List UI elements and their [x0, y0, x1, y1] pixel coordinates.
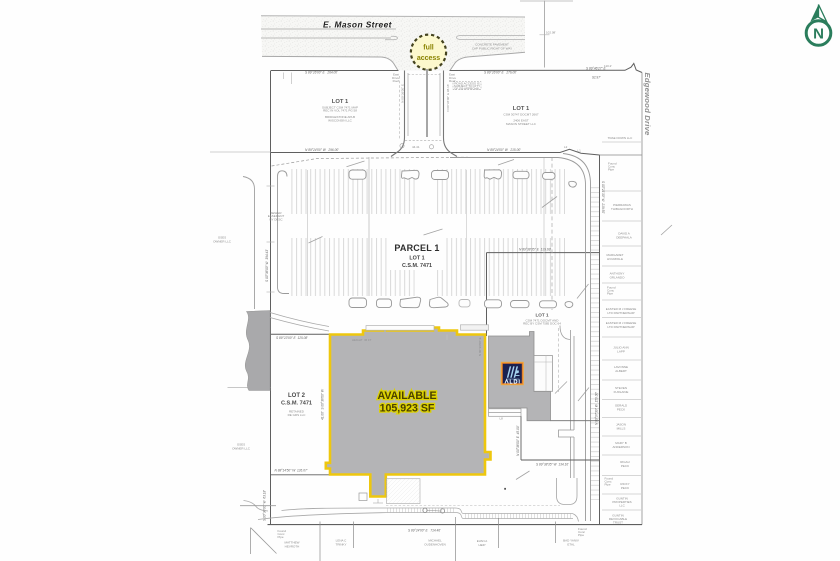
svg-text:Pipe: Pipe	[578, 533, 584, 537]
svg-text:Edgewood Drive: Edgewood Drive	[643, 73, 652, 137]
svg-text:Roof: Roof	[393, 79, 400, 83]
svg-text:S 89°26'00" E 276.00': S 89°26'00" E 276.00'	[484, 71, 517, 75]
svg-text:HVURPALE: HVURPALE	[607, 257, 623, 261]
svg-text:C.S.M. 7471: C.S.M. 7471	[402, 263, 432, 269]
svg-text:LOT 2: LOT 2	[288, 393, 306, 399]
svg-text:N 89°38'35" E 139.69': N 89°38'35" E 139.69'	[519, 247, 551, 251]
svg-text:S 89°38'35" W 134.16': S 89°38'35" W 134.16'	[536, 462, 569, 466]
svg-text:N 88°14'50" W 126.07': N 88°14'50" W 126.07'	[275, 469, 308, 473]
svg-text:Pipe: Pipe	[278, 535, 284, 539]
svg-text:N 89°24'00" W 296.00': N 89°24'00" W 296.00'	[305, 148, 339, 152]
svg-text:WISCONSIN LLC: WISCONSIN LLC	[328, 119, 353, 123]
svg-text:LOT 1: LOT 1	[513, 106, 530, 112]
svg-text:HEVROTH: HEVROTH	[285, 545, 300, 549]
svg-text:PECK: PECK	[621, 486, 629, 490]
svg-text:MILLS: MILLS	[617, 427, 626, 431]
svg-text:ANDERSON: ANDERSON	[612, 445, 629, 449]
svg-text:HEIP: HEIP	[478, 543, 485, 547]
svg-text:Pipe: Pipe	[607, 292, 613, 296]
svg-text:C.S.M. 7471: C.S.M. 7471	[281, 401, 312, 407]
svg-text:44.41: 44.41	[412, 145, 420, 149]
svg-text:OUDENHOVEN: OUDENHOVEN	[424, 543, 446, 547]
svg-text:TRUST: TRUST	[613, 521, 623, 525]
svg-text:Pipe: Pipe	[605, 483, 611, 487]
svg-text:E. Mason Street: E. Mason Street	[323, 19, 393, 29]
svg-text:LTD PARTNERSHIP: LTD PARTNERSHIP	[607, 325, 634, 329]
svg-text:N: N	[813, 26, 824, 43]
svg-text:REC BY CSM 7585 DOC 64: REC BY CSM 7585 DOC 64	[523, 322, 561, 326]
svg-text:PARCEL 1: PARCEL 1	[394, 243, 439, 253]
svg-text:ALBERT: ALBERT	[615, 369, 627, 373]
svg-text:OF GB APPROVAL: OF GB APPROVAL	[454, 86, 480, 90]
svg-text:full: full	[423, 45, 434, 52]
svg-text:S 00°21'30" W 219.50': S 00°21'30" W 219.50'	[601, 181, 605, 214]
svg-text:LAPP: LAPP	[617, 350, 625, 354]
svg-text:110.2': 110.2'	[604, 64, 612, 68]
svg-text:REC IN VOL 7471 PG 58: REC IN VOL 7471 PG 58	[323, 108, 357, 112]
svg-text:PECK: PECK	[617, 408, 625, 412]
svg-text:LOT 1: LOT 1	[535, 313, 548, 318]
svg-text:MASON STREET LLC: MASON STREET LLC	[506, 122, 537, 126]
svg-text:L1: L1	[578, 149, 582, 153]
svg-text:ORLANDO: ORLANDO	[610, 276, 626, 280]
svg-text:N 00°36'00" E 45.00': N 00°36'00" E 45.00'	[516, 425, 520, 456]
svg-text:TRINKY: TRINKY	[335, 543, 346, 547]
svg-text:105,923 SF: 105,923 SF	[380, 403, 435, 415]
svg-text:OWNER LLC: OWNER LLC	[232, 447, 251, 451]
svg-text:N 00°36'00" E: N 00°36'00" E	[478, 337, 482, 356]
svg-text:S 00°36'00" W 394.43': S 00°36'00" W 394.43'	[265, 249, 269, 282]
svg-text:92.97': 92.97'	[592, 75, 601, 79]
svg-text:LOT 1: LOT 1	[409, 256, 424, 262]
svg-text:LTD PARTNERSHIP: LTD PARTNERSHIP	[607, 311, 634, 315]
svg-text:S 89°23'00" E 125.08': S 89°23'00" E 125.08'	[276, 336, 308, 340]
svg-text:LLC: LLC	[619, 504, 625, 508]
svg-text:S 89°26'00" E 264.00': S 89°26'00" E 264.00'	[305, 70, 338, 74]
svg-text:DEEPAALA: DEEPAALA	[616, 236, 632, 240]
svg-text:THIBAGOORTH: THIBAGOORTH	[611, 207, 633, 211]
svg-text:ETAL: ETAL	[567, 543, 575, 547]
svg-text:S 89°24'00" E 714.46': S 89°24'00" E 714.46'	[408, 529, 441, 533]
svg-text:HEIGHT 36 FT: HEIGHT 36 FT	[352, 338, 372, 342]
svg-text:L8: L8	[500, 417, 504, 421]
svg-text:N 89°24'00" W 215.00': N 89°24'00" W 215.00'	[487, 148, 521, 152]
svg-text:CSM 30747 DOCMT 2667: CSM 30747 DOCMT 2667	[503, 113, 538, 117]
svg-text:FURLAINE: FURLAINE	[614, 390, 629, 394]
svg-text:LOT 1: LOT 1	[332, 99, 349, 105]
svg-text:BY DESC: BY DESC	[269, 217, 283, 221]
svg-text:OWNER LLC: OWNER LLC	[213, 240, 232, 244]
svg-text:RE GRS LLC: RE GRS LLC	[288, 413, 307, 417]
svg-text:N 00°36'00" E 98.16': N 00°36'00" E 98.16'	[446, 84, 450, 112]
svg-text:CAP PUBLIC RIGHT OF WAY: CAP PUBLIC RIGHT OF WAY	[472, 46, 512, 50]
svg-text:L2: L2	[564, 145, 568, 149]
svg-text:access: access	[417, 55, 440, 62]
svg-text:Pipe: Pipe	[608, 168, 614, 172]
svg-text:102.08': 102.08'	[546, 30, 556, 34]
svg-text:N 00°07'30" W 150.00': N 00°07'30" W 150.00'	[594, 392, 598, 425]
svg-text:41.00' S 00°36'00" W: 41.00' S 00°36'00" W	[321, 388, 325, 420]
svg-text:AVAILABLE: AVAILABLE	[377, 390, 436, 402]
svg-text:TRAE DOWN LLC: TRAE DOWN LLC	[608, 136, 634, 140]
svg-text:PECK: PECK	[621, 464, 629, 468]
svg-text:N 00°36'00" E: N 00°36'00" E	[400, 84, 404, 103]
